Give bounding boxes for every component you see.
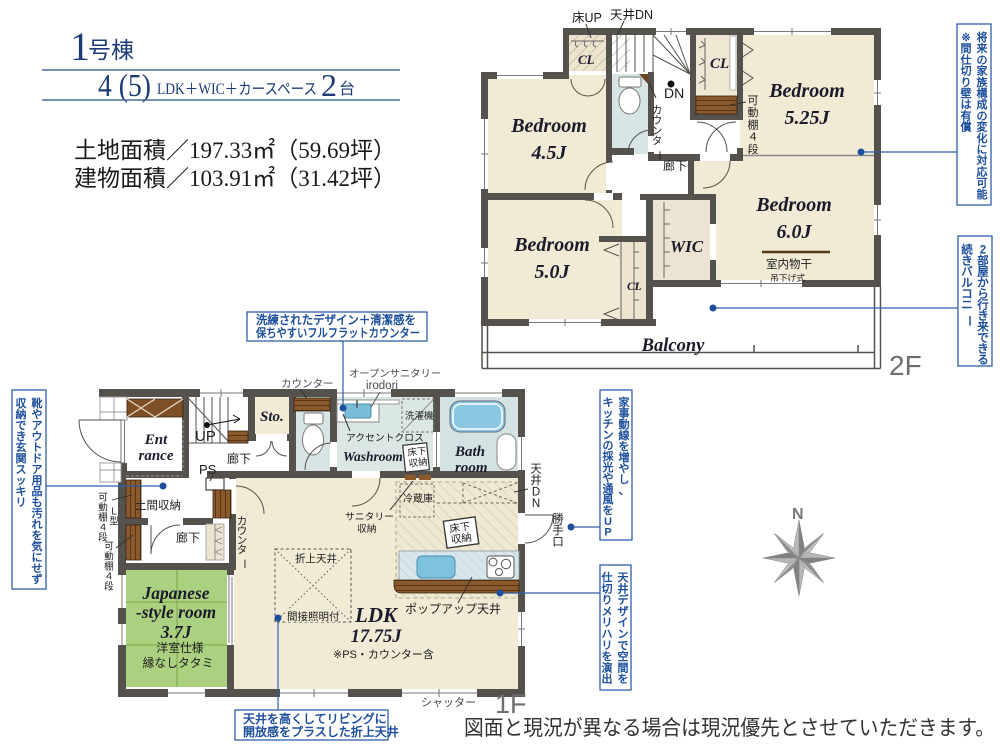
svg-text:Bedroom: Bedroom — [510, 115, 587, 137]
svg-text:4.5J: 4.5J — [531, 142, 568, 164]
svg-text:CL: CL — [578, 52, 595, 67]
svg-text:サニタリー: サニタリー — [345, 511, 394, 523]
svg-text:室内物干: 室内物干 — [766, 257, 812, 271]
svg-text:縁なしタタミ: 縁なしタタミ — [143, 656, 214, 670]
svg-text:Ent: Ent — [144, 432, 168, 448]
svg-text:シャッター: シャッター — [421, 696, 476, 709]
svg-text:洗練されたデザイン＋清潔感を: 洗練されたデザイン＋清潔感を — [256, 312, 416, 327]
svg-text:靴やアウトドア用品も汚れを気にせず: 靴やアウトドア用品も汚れを気にせず — [32, 396, 43, 586]
svg-text:Bedroom: Bedroom — [768, 80, 845, 102]
svg-text:洗濯機: 洗濯機 — [405, 410, 434, 422]
svg-text:-style room: -style room — [136, 602, 216, 622]
svg-text:将来の家族構成の変化に対応可能: 将来の家族構成の変化に対応可能 — [976, 30, 989, 201]
svg-text:Japanese: Japanese — [141, 583, 209, 603]
svg-text:号棟: 号棟 — [88, 38, 134, 63]
svg-text:1: 1 — [70, 24, 90, 69]
svg-text:土地面積／197.33㎡（59.69坪）: 土地面積／197.33㎡（59.69坪） — [74, 138, 396, 163]
svg-text:オープンサニタリー: オープンサニタリー — [349, 368, 441, 380]
svg-text:1F: 1F — [495, 689, 527, 719]
svg-text:可動棚４段: 可動棚４段 — [104, 542, 114, 593]
svg-text:仕切りメリハリを演出: 仕切りメリハリを演出 — [601, 570, 613, 686]
svg-text:可動棚４段: 可動棚４段 — [98, 493, 108, 544]
svg-text:3.7J: 3.7J — [160, 622, 193, 642]
svg-text:DN: DN — [664, 85, 684, 101]
svg-text:可動棚４段: 可動棚４段 — [748, 95, 759, 156]
svg-text:ポップアップ天井: ポップアップ天井 — [405, 602, 501, 616]
svg-text:カウンター: カウンター — [281, 378, 334, 390]
svg-text:6.0J: 6.0J — [777, 221, 813, 243]
svg-text:洋室仕様: 洋室仕様 — [156, 641, 203, 655]
svg-text:建物面積／103.91㎡（31.42坪）: 建物面積／103.91㎡（31.42坪） — [74, 166, 396, 191]
svg-text:N: N — [792, 506, 804, 523]
svg-text:Sto.: Sto. — [260, 409, 284, 425]
svg-text:5.25J: 5.25J — [785, 107, 831, 129]
svg-text:2部屋から行き来できる: 2部屋から行き来できる — [976, 245, 989, 367]
svg-text:LDK: LDK — [354, 603, 399, 627]
svg-text:Ｌ型: Ｌ型 — [109, 507, 119, 528]
svg-text:PS: PS — [199, 462, 217, 477]
svg-text:Bedroom: Bedroom — [755, 194, 832, 216]
svg-text:図面と現況が異なる場合は現況優先とさせていただきます。: 図面と現況が異なる場合は現況優先とさせていただきます。 — [464, 717, 995, 740]
svg-text:冷蔵庫: 冷蔵庫 — [403, 492, 433, 505]
svg-text:Bath: Bath — [454, 444, 485, 460]
svg-text:Washroom: Washroom — [343, 449, 403, 464]
svg-text:台: 台 — [339, 80, 355, 98]
svg-text:土間収納: 土間収納 — [135, 499, 181, 512]
svg-text:2: 2 — [321, 67, 337, 103]
svg-text:LDK＋WIC＋カースペース: LDK＋WIC＋カースペース — [157, 81, 317, 98]
svg-text:開放感をプラスした折上天井: 開放感をプラスした折上天井 — [243, 724, 399, 739]
svg-text:廊下: 廊下 — [176, 530, 200, 545]
svg-text:廊下: 廊下 — [663, 158, 687, 173]
svg-text:UP: UP — [195, 428, 216, 445]
svg-text:保ちやすいフルフラットカウンター: 保ちやすいフルフラットカウンター — [255, 325, 420, 340]
svg-text:2F: 2F — [889, 350, 922, 381]
svg-text:吊下げ式: 吊下げ式 — [770, 272, 805, 283]
svg-text:room: room — [455, 460, 488, 476]
svg-text:CL: CL — [627, 281, 642, 293]
svg-text:天井DN: 天井DN — [610, 8, 653, 22]
svg-text:irodori: irodori — [366, 380, 398, 392]
svg-text:rance: rance — [139, 448, 174, 464]
svg-text:4 (5): 4 (5) — [98, 67, 151, 103]
svg-text:Bedroom: Bedroom — [513, 234, 590, 256]
svg-text:天井デザインで空間を: 天井デザインで空間を — [618, 571, 630, 686]
svg-text:※間仕切り壁は有償: ※間仕切り壁は有償 — [960, 32, 973, 134]
svg-text:WIC: WIC — [670, 237, 704, 256]
svg-text:アクセントクロス: アクセントクロス — [346, 432, 424, 444]
svg-text:家事動線を増やし、: 家事動線を増やし、 — [619, 395, 631, 497]
svg-text:間接照明付: 間接照明付 — [287, 610, 340, 623]
svg-text:5.0J: 5.0J — [535, 261, 571, 283]
svg-text:収納でき玄関スッキリ: 収納でき玄関スッキリ — [16, 397, 28, 509]
svg-text:収納: 収納 — [408, 456, 428, 470]
svg-text:勝手口: 勝手口 — [552, 512, 564, 549]
svg-text:床UP: 床UP — [572, 11, 602, 25]
svg-text:天井を高くしてリビングに: 天井を高くしてリビングに — [243, 711, 387, 726]
svg-text:折上天井: 折上天井 — [295, 552, 337, 565]
svg-text:17.75J: 17.75J — [351, 627, 403, 647]
svg-text:Balcony: Balcony — [641, 336, 705, 356]
svg-text:収納: 収納 — [357, 522, 377, 535]
svg-text:CL: CL — [710, 56, 729, 72]
svg-text:廊下: 廊下 — [227, 451, 251, 466]
svg-text:※PS・カウンター含: ※PS・カウンター含 — [333, 647, 434, 661]
